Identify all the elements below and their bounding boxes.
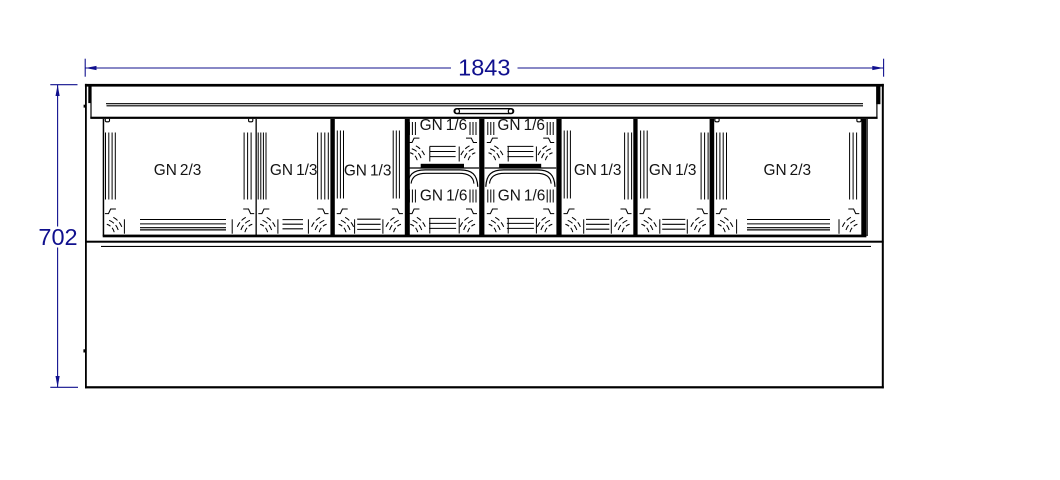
svg-text:GN 1/6: GN 1/6 bbox=[420, 187, 468, 204]
svg-text:GN 1/3: GN 1/3 bbox=[270, 162, 318, 179]
svg-text:GN 2/3: GN 2/3 bbox=[154, 162, 202, 179]
svg-text:GN 1/6: GN 1/6 bbox=[497, 117, 545, 134]
svg-text:702: 702 bbox=[38, 224, 77, 250]
svg-text:GN 2/3: GN 2/3 bbox=[764, 162, 812, 179]
svg-text:GN 1/6: GN 1/6 bbox=[498, 187, 546, 204]
svg-text:GN 1/3: GN 1/3 bbox=[649, 162, 697, 179]
svg-text:GN 1/6: GN 1/6 bbox=[420, 117, 468, 134]
svg-text:GN 1/3: GN 1/3 bbox=[344, 162, 392, 179]
svg-text:GN 1/3: GN 1/3 bbox=[574, 162, 622, 179]
svg-text:1843: 1843 bbox=[458, 55, 510, 81]
